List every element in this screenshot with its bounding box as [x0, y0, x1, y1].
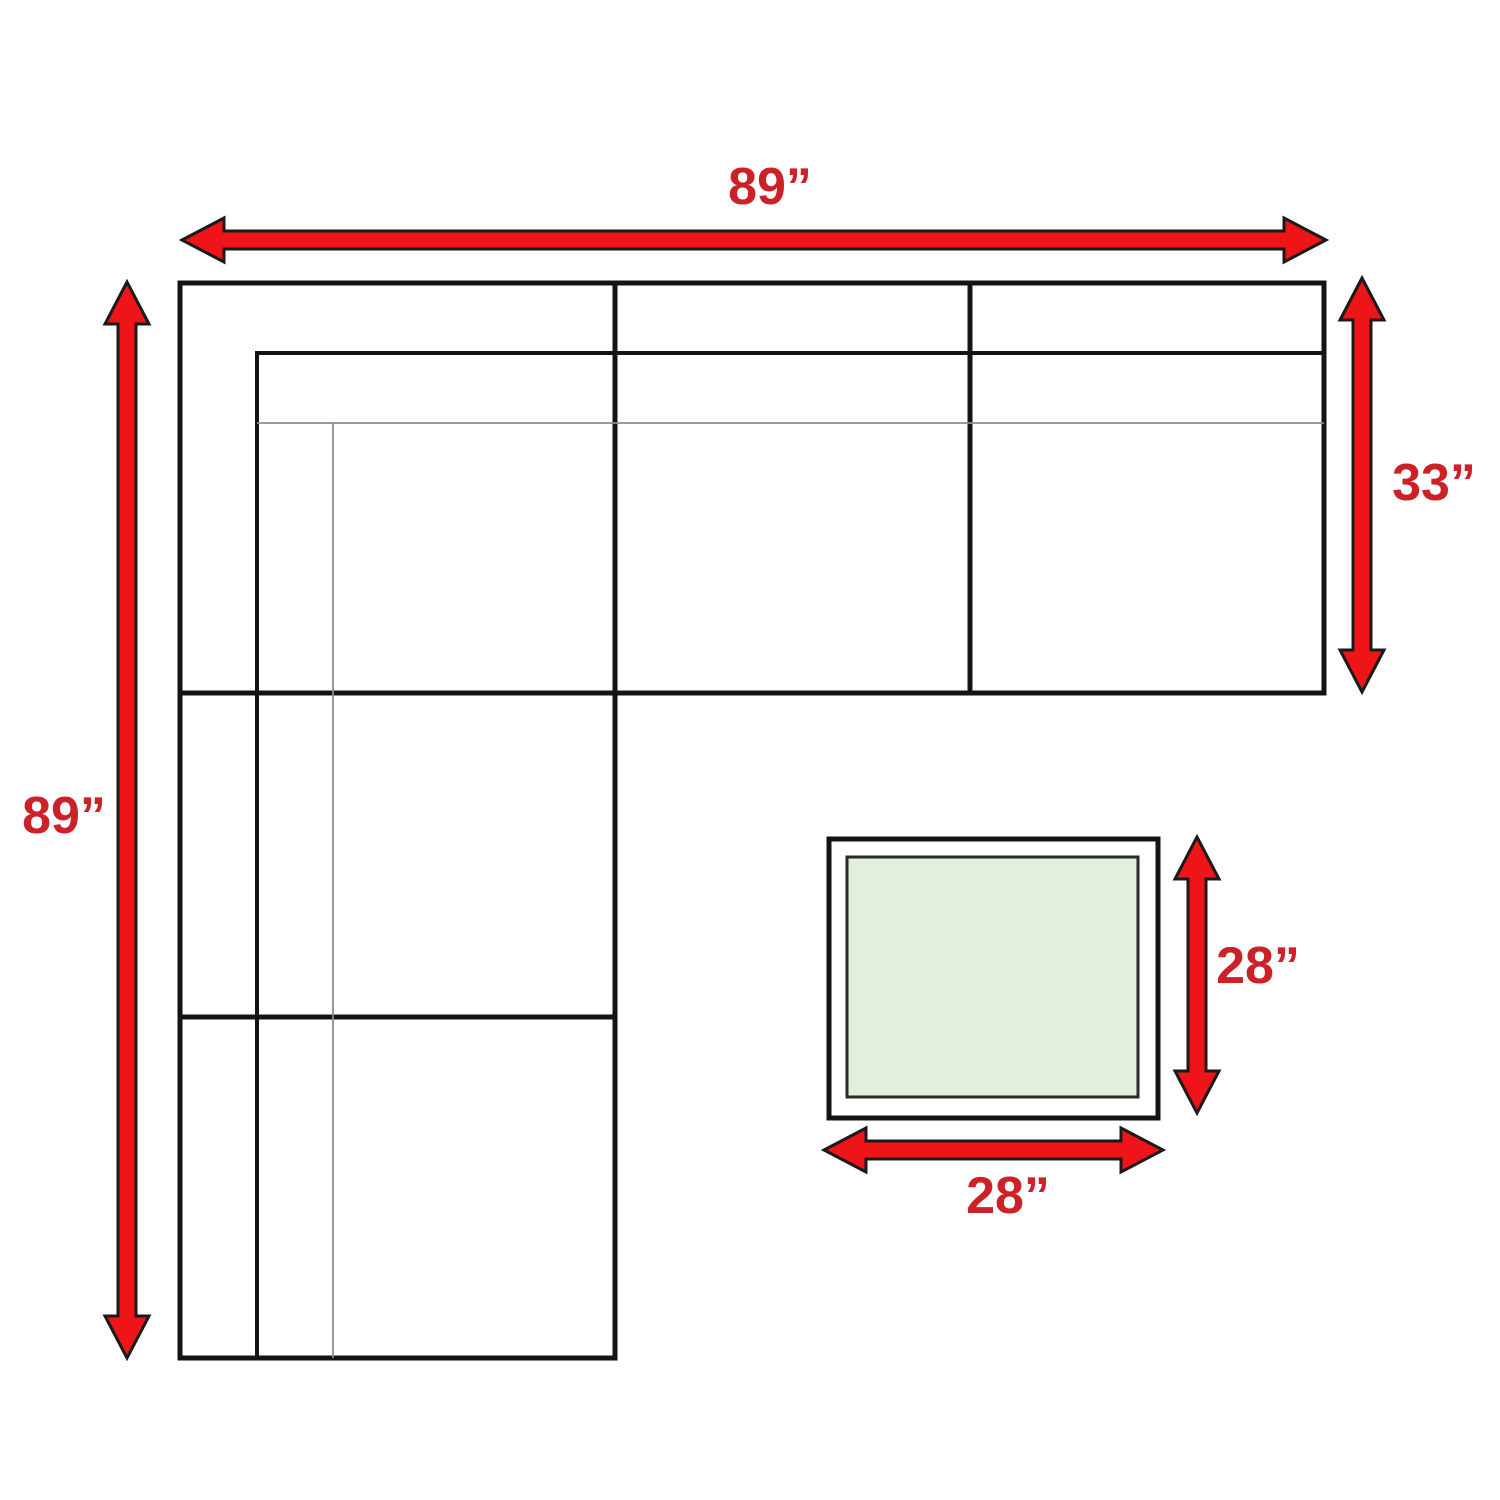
ottoman-width-label: 28” [966, 1170, 1050, 1222]
ottoman-height-label: 28” [1216, 940, 1300, 992]
right-depth-label: 33” [1392, 457, 1476, 509]
left-height-arrow [105, 282, 149, 1358]
right-depth-arrow [1340, 278, 1384, 692]
ottoman-top-surface [847, 857, 1138, 1097]
left-height-label: 89” [22, 790, 106, 842]
sectional-sofa-outline [180, 283, 1324, 1358]
ottoman-width-arrow [824, 1128, 1163, 1172]
ottoman-height-arrow [1175, 837, 1219, 1113]
top-width-label: 89” [728, 161, 812, 213]
diagram-canvas [0, 0, 1500, 1500]
top-width-arrow [182, 218, 1326, 262]
dimension-diagram: 89” 89” 33” 28” 28” [0, 0, 1500, 1500]
